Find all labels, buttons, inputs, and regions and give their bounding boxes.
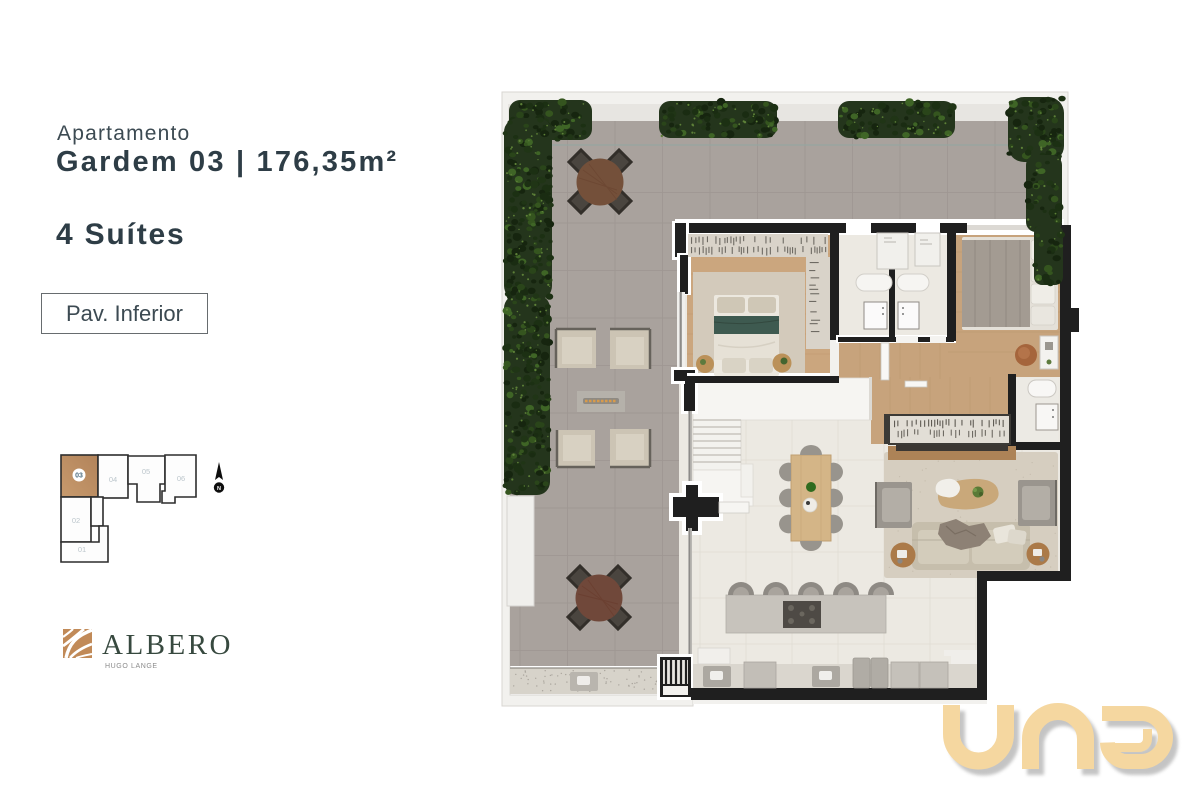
svg-text:03: 03 bbox=[75, 473, 83, 480]
svg-text:05: 05 bbox=[142, 467, 150, 476]
svg-text:06: 06 bbox=[177, 474, 185, 483]
svg-text:04: 04 bbox=[109, 475, 117, 484]
svg-text:02: 02 bbox=[72, 516, 80, 525]
svg-text:N: N bbox=[217, 486, 221, 492]
svg-text:01: 01 bbox=[78, 545, 86, 554]
